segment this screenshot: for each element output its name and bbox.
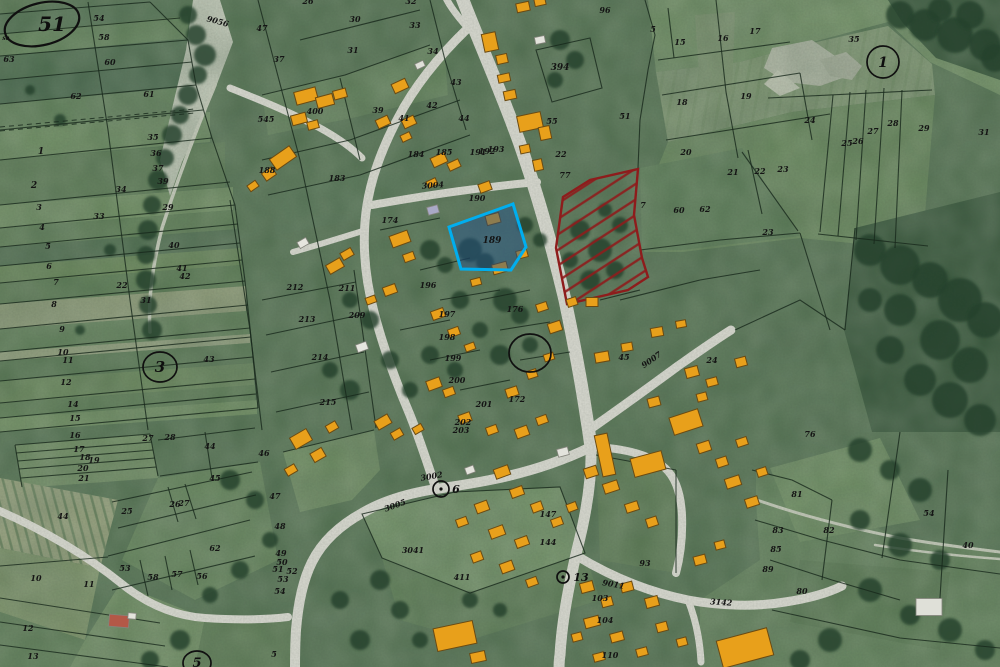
parcel-number: 55 bbox=[546, 116, 558, 126]
parcel-number: 203 bbox=[452, 425, 470, 435]
parcel-number: 27 bbox=[177, 498, 190, 508]
parcel-number: 144 bbox=[540, 537, 557, 547]
parcel-number: 89 bbox=[762, 564, 774, 574]
cadastral-map-viewport: 5458636062611234353637393334567891011121… bbox=[0, 0, 1000, 667]
parcel-number: 46 bbox=[258, 448, 270, 458]
parcel-number: 104 bbox=[597, 615, 614, 625]
parcel-number: 39 bbox=[372, 105, 384, 115]
parcel-number: 110 bbox=[602, 650, 619, 660]
zone-number: 51 bbox=[38, 12, 66, 36]
structure bbox=[128, 613, 136, 620]
road-number: 3004 bbox=[421, 179, 444, 191]
parcel-number: 7 bbox=[53, 277, 59, 287]
parcel-number: 57 bbox=[171, 569, 183, 579]
parcel-number: 19 bbox=[740, 91, 752, 101]
building-footprint bbox=[675, 320, 686, 329]
parcel-number: 83 bbox=[772, 525, 784, 535]
parcel-number: 411 bbox=[454, 572, 471, 582]
parcel-number: 184 bbox=[408, 149, 425, 159]
parcel-number: 32 bbox=[405, 0, 417, 6]
parcel-number: 15 bbox=[69, 413, 81, 423]
parcel-number: 26 bbox=[851, 136, 864, 146]
building-footprint bbox=[532, 159, 543, 172]
parcel-number: 213 bbox=[298, 314, 316, 324]
parcel-number: 80 bbox=[796, 586, 808, 596]
selected-parcel-number: 189 bbox=[483, 236, 503, 246]
parcel-number: 76 bbox=[804, 429, 816, 439]
parcel-number: 56 bbox=[196, 571, 208, 581]
parcel-number: 60 bbox=[673, 205, 685, 215]
parcel-number: 24 bbox=[705, 355, 718, 365]
building-footprint bbox=[650, 327, 663, 338]
parcel-number: 21 bbox=[77, 473, 89, 483]
parcel-number: 19 bbox=[88, 455, 100, 465]
parcel-number: 44 bbox=[204, 441, 216, 451]
zone-number: 6 bbox=[452, 483, 460, 496]
parcel-number: 30 bbox=[349, 14, 361, 24]
parcel-number: 188 bbox=[259, 165, 276, 175]
parcel-number: 54 bbox=[93, 13, 105, 23]
structure bbox=[109, 614, 130, 628]
zone-dot bbox=[439, 487, 442, 490]
parcel-number: 53 bbox=[119, 563, 131, 573]
parcel-number: 400 bbox=[307, 106, 324, 116]
parcel-number: 147 bbox=[540, 509, 557, 519]
parcel-number: 51 bbox=[619, 111, 630, 121]
parcel-number: 24 bbox=[803, 115, 816, 125]
parcel-number: 545 bbox=[258, 114, 275, 124]
parcel-number: 212 bbox=[286, 282, 304, 292]
parcel-number: 7 bbox=[640, 200, 646, 210]
parcel-number: 35 bbox=[848, 34, 860, 44]
parcel-number: 61 bbox=[143, 89, 154, 99]
parcel-number: 47 bbox=[256, 23, 268, 33]
parcel-number: 22 bbox=[753, 166, 766, 176]
parcel-number: 1 bbox=[38, 147, 44, 157]
parcel-number: 37 bbox=[273, 54, 285, 64]
zone-number: 3 bbox=[155, 358, 165, 376]
parcel-number: 54 bbox=[923, 508, 935, 518]
parcel-number: 42 bbox=[426, 100, 438, 110]
parcel-number: 34 bbox=[427, 46, 439, 56]
parcel-number: 8 bbox=[51, 299, 57, 309]
zone-number: 13 bbox=[573, 571, 589, 584]
parcel-number: 62 bbox=[209, 543, 221, 553]
parcel-number: 43 bbox=[450, 77, 462, 87]
parcel-number: 5 bbox=[650, 24, 656, 34]
road-number: 3142 bbox=[710, 596, 733, 608]
parcel-number: 45 bbox=[209, 473, 221, 483]
building-footprint bbox=[586, 298, 598, 307]
building-footprint bbox=[519, 144, 530, 154]
parcel-number: 25 bbox=[840, 138, 853, 148]
parcel-number: 9 bbox=[59, 324, 65, 334]
parcel-number: 22 bbox=[115, 280, 128, 290]
parcel-number: 20 bbox=[76, 463, 89, 473]
parcel-number: 31 bbox=[140, 295, 151, 305]
parcel-number: 40 bbox=[962, 540, 974, 550]
parcel-number: 44 bbox=[57, 511, 69, 521]
parcel-number: 11 bbox=[62, 355, 73, 365]
parcel-number: 11 bbox=[83, 579, 94, 589]
parcel-number: 17 bbox=[749, 26, 761, 36]
parcel-number: 12 bbox=[22, 623, 34, 633]
parcel-number: 33 bbox=[409, 20, 421, 30]
parcel-number: 48 bbox=[274, 521, 286, 531]
parcel-number: 33 bbox=[93, 211, 105, 221]
parcel-number: 190 bbox=[469, 193, 486, 203]
parcel-number: 54 bbox=[274, 586, 286, 596]
parcel-number: 198 bbox=[439, 332, 456, 342]
structure bbox=[916, 599, 942, 616]
parcel-number: 35 bbox=[147, 132, 159, 142]
parcel-number: 63 bbox=[3, 54, 15, 64]
parcel-number: 199 bbox=[445, 353, 462, 363]
building-footprint bbox=[538, 125, 551, 140]
parcel-number: 43 bbox=[203, 354, 215, 364]
parcel-number: 14 bbox=[67, 399, 79, 409]
parcel-number: 183 bbox=[329, 173, 346, 183]
parcel-number: 51 bbox=[272, 564, 283, 574]
parcel-number: 34 bbox=[115, 184, 127, 194]
road-number: 3041 bbox=[402, 545, 424, 555]
parcel-number: 196 bbox=[420, 280, 437, 290]
parcel-number: 16 bbox=[717, 33, 729, 43]
parcel-number: 36 bbox=[150, 148, 162, 158]
parcel-number: 18 bbox=[676, 97, 688, 107]
parcel-number: 58 bbox=[147, 572, 159, 582]
parcel-number: 16 bbox=[69, 430, 81, 440]
parcel-number: 209 bbox=[348, 310, 366, 320]
parcel-number: 96 bbox=[599, 5, 611, 15]
parcel-number: 2 bbox=[30, 181, 37, 191]
parcel-number: 41 bbox=[398, 113, 409, 123]
parcel-number: 27 bbox=[866, 126, 879, 136]
map-canvas[interactable]: 5458636062611234353637393334567891011121… bbox=[0, 0, 1000, 667]
parcel-number: 174 bbox=[382, 215, 399, 225]
parcel-number: 200 bbox=[448, 375, 466, 385]
parcel-number: 62 bbox=[699, 204, 711, 214]
parcel-number: 21 bbox=[726, 167, 738, 177]
parcel-number: 58 bbox=[98, 32, 110, 42]
building-footprint bbox=[496, 53, 509, 64]
parcel-number: 85 bbox=[770, 544, 782, 554]
parcel-number: 176 bbox=[507, 304, 524, 314]
parcel-number: 31 bbox=[978, 127, 989, 137]
parcel-number: 47 bbox=[269, 491, 281, 501]
parcel-number: 81 bbox=[791, 489, 802, 499]
structure bbox=[534, 36, 545, 45]
parcel-number: 28 bbox=[886, 118, 899, 128]
parcel-number: 6 bbox=[46, 261, 52, 271]
parcel-number: 201 bbox=[475, 399, 493, 409]
parcel-number: 60 bbox=[104, 57, 116, 67]
parcel-number: 31 bbox=[347, 45, 358, 55]
parcel-number: 26 bbox=[301, 0, 314, 6]
parcel-number: 214 bbox=[311, 352, 329, 362]
parcel-number: 29 bbox=[161, 202, 174, 212]
parcel-number: 93 bbox=[639, 558, 651, 568]
parcel-number: 28 bbox=[163, 432, 176, 442]
parcel-number: 211 bbox=[338, 283, 356, 293]
parcel-number: 53 bbox=[277, 574, 289, 584]
parcel-number: 13 bbox=[27, 651, 39, 661]
zone-dot bbox=[561, 575, 564, 578]
parcel-number: 37 bbox=[152, 163, 164, 173]
parcel-number: 3 bbox=[36, 202, 42, 212]
parcel-number: 42 bbox=[179, 271, 191, 281]
building-footprint bbox=[503, 89, 517, 100]
parcel-number: 15 bbox=[674, 37, 686, 47]
zone-number: 1 bbox=[878, 55, 888, 71]
parcel-number: 193 bbox=[488, 144, 505, 154]
parcel-number: 45 bbox=[618, 352, 630, 362]
parcel-number: 25 bbox=[120, 506, 133, 516]
building-footprint bbox=[594, 351, 610, 363]
parcel-number: 23 bbox=[776, 164, 789, 174]
parcel-number: 23 bbox=[761, 227, 774, 237]
building-footprint bbox=[621, 342, 633, 352]
parcel-number: 40 bbox=[168, 240, 180, 250]
parcel-number: 5 bbox=[45, 241, 51, 251]
parcel-number: 62 bbox=[70, 91, 82, 101]
parcel-number: 29 bbox=[917, 123, 930, 133]
parcel-number: 82 bbox=[823, 525, 835, 535]
parcel-number: 10 bbox=[30, 573, 42, 583]
parcel-number: 12 bbox=[60, 377, 72, 387]
parcel-number: 44 bbox=[458, 113, 470, 123]
parcel-number: 20 bbox=[679, 147, 692, 157]
parcel-number: 103 bbox=[592, 593, 609, 603]
parcel-number: 215 bbox=[319, 397, 337, 407]
parcel-number: 77 bbox=[559, 170, 571, 180]
parcel-number: 197 bbox=[439, 309, 456, 319]
parcel-number: 185 bbox=[436, 147, 453, 157]
parcel-number: 172 bbox=[509, 394, 526, 404]
parcel-number: 27 bbox=[141, 433, 154, 443]
building-footprint bbox=[481, 32, 498, 53]
parcel-number: 4 bbox=[39, 222, 45, 232]
parcel-number: 394 bbox=[551, 63, 570, 73]
parcel-number: 5 bbox=[271, 649, 277, 659]
parcel-number: 39 bbox=[157, 176, 169, 186]
parcel-number: 22 bbox=[554, 149, 567, 159]
zone-number: 5 bbox=[192, 656, 201, 667]
